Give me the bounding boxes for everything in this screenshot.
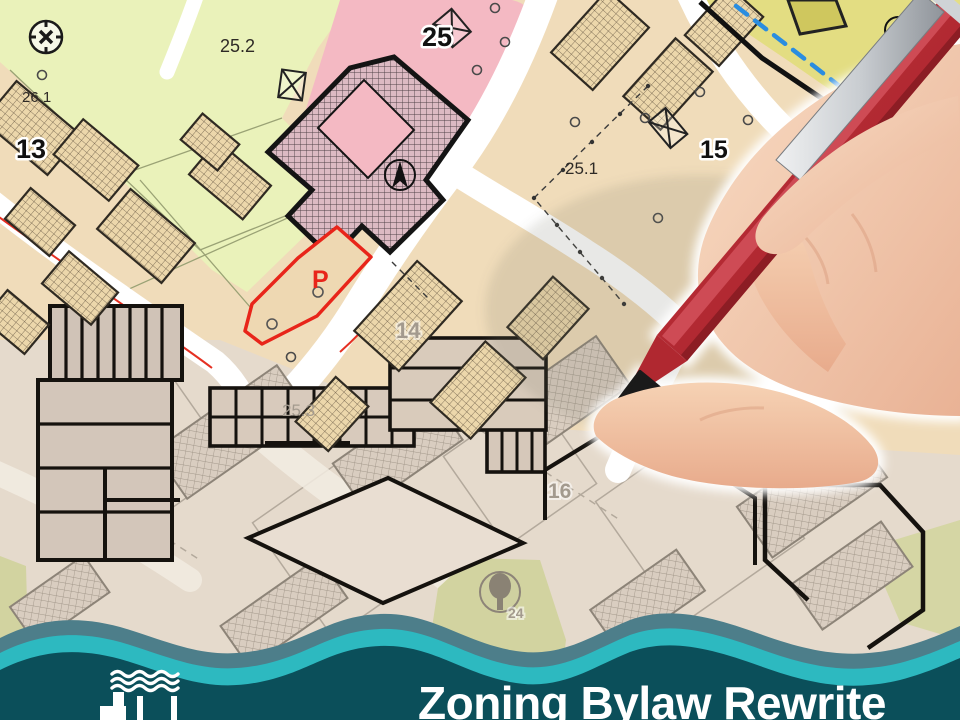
parcel-label-15: 15 [700, 136, 728, 164]
grid-building-left-top [50, 306, 182, 380]
parcel-label-25-2: 25.2 [220, 36, 255, 56]
banner-title: Zoning Bylaw Rewrite [418, 676, 886, 720]
parcel-label-25-1: 25.1 [565, 159, 598, 178]
parcel-label-26-1: 26.1 [22, 89, 51, 106]
parcel-label-p: P [312, 266, 329, 294]
parcel-label-14: 14 [396, 318, 421, 343]
parcel-label-25: 25 [422, 22, 452, 52]
zoning-bylaw-graphic: 25.2 25 26.1 13 25.1 15 P 14 25.3 16 24 [0, 0, 960, 720]
logo-water-waves [112, 672, 178, 691]
survey-marker-icon [30, 21, 62, 53]
logo-pier-structure [100, 692, 177, 720]
waterfront-dock-logo [95, 662, 195, 720]
parcel-label-25-3: 25.3 [282, 401, 315, 420]
parcel-label-16: 16 [548, 480, 571, 503]
parcel-label-13: 13 [16, 134, 46, 164]
